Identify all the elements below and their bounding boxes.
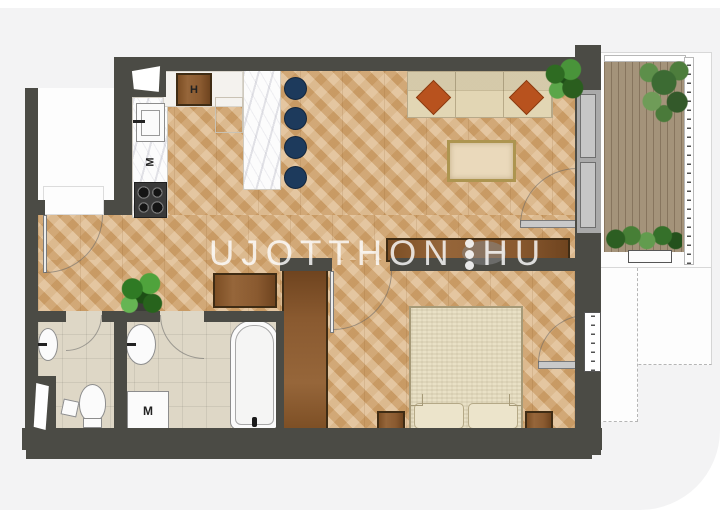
floor-plan: H M M: [0, 0, 720, 510]
hall-closet: [213, 273, 277, 308]
kitchen-sink: [136, 103, 165, 142]
wall-entry-right-jamb: [104, 200, 132, 215]
faucet-icon: [133, 120, 145, 123]
fridge: H: [176, 73, 212, 106]
bedroom-window: [584, 312, 601, 372]
bed: [409, 306, 523, 433]
wall-top: [114, 57, 600, 71]
wall-bath-top-3: [204, 311, 280, 322]
wall-bath-top-1: [38, 311, 66, 322]
terrace-sliding-door: [577, 90, 601, 233]
coffee-table: [447, 140, 516, 182]
wall-bottom-ledge: [26, 450, 592, 459]
wc-corner-shelf: [61, 399, 80, 418]
wall-bath-divider: [114, 311, 127, 430]
bed-blanket-fold-left: [411, 394, 423, 406]
stove: [134, 182, 167, 218]
wall-bottom-main: [22, 428, 602, 450]
wall-entry-left-jamb: [25, 200, 45, 215]
terrace-door-pane-bottom: [580, 162, 596, 228]
bathtub: [230, 320, 279, 430]
bathtub-inner: [235, 325, 274, 425]
watermark-text-left: UJOTTHON: [209, 234, 456, 274]
toilet-tank: [83, 418, 102, 428]
terrace-outline-strip: [598, 268, 638, 422]
bar-stool-1: [284, 77, 307, 100]
washing-machine: M: [127, 391, 169, 430]
washing-machine-label: M: [143, 404, 153, 418]
toilet-bowl: [79, 384, 106, 422]
bar-stool-2: [284, 107, 307, 130]
living-room-plant: [542, 58, 586, 104]
hall-plant: [112, 268, 170, 320]
watermark-dots-icon: [465, 239, 474, 270]
dishwasher-label: M: [145, 157, 157, 166]
entry-landing: [43, 186, 104, 215]
bottom-shaft-opening: [33, 381, 51, 432]
fridge-label: H: [190, 84, 198, 96]
bathtub-drain: [252, 417, 257, 427]
kitchen-island: [243, 68, 281, 190]
kitchen-shaft-opening: [130, 65, 162, 93]
bar-stool-3: [284, 136, 307, 159]
bed-pillow-right: [468, 403, 518, 429]
bed-blanket-fold-right: [509, 394, 521, 406]
terrace-planter-bushes: [604, 222, 682, 256]
watermark: UJOTTHON HU: [209, 234, 547, 274]
bar-stool-4: [284, 166, 307, 189]
terrace-palm-plant: [634, 48, 694, 130]
outside-area-top-left: [38, 88, 114, 200]
dishwasher: M: [138, 148, 164, 176]
wall-left-upper-fin: [25, 88, 38, 215]
kitchen-corner-shaft: [126, 61, 166, 97]
kitchen-sink-basin: [141, 110, 160, 136]
kitchen-island-ledge: [215, 97, 243, 133]
bedroom-wardrobe: [282, 269, 328, 433]
bottom-left-shaft: [28, 376, 56, 437]
watermark-text-right: HU: [483, 234, 548, 274]
bed-pillow-left: [414, 403, 464, 429]
wall-tub-wardrobe: [276, 311, 284, 432]
